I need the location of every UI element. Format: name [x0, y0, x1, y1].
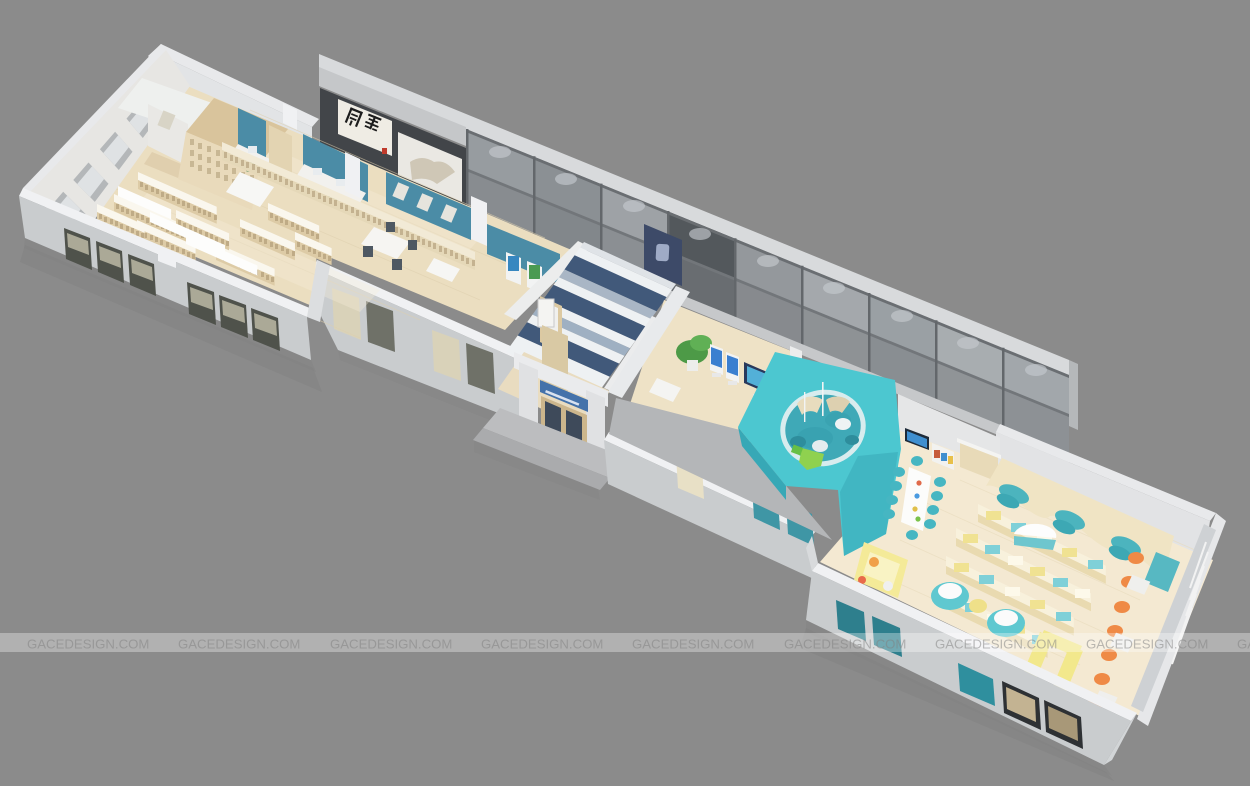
svg-text:GACEDESIGN.COM: GACEDESIGN.COM — [1237, 637, 1250, 652]
svg-text:GACEDESIGN.COM: GACEDESIGN.COM — [935, 637, 1057, 652]
svg-text:GACEDESIGN.COM: GACEDESIGN.COM — [27, 637, 149, 652]
svg-text:GACEDESIGN.COM: GACEDESIGN.COM — [330, 637, 452, 652]
svg-text:GACEDESIGN.COM: GACEDESIGN.COM — [1086, 637, 1208, 652]
svg-text:GACEDESIGN.COM: GACEDESIGN.COM — [632, 637, 754, 652]
svg-text:GACEDESIGN.COM: GACEDESIGN.COM — [784, 637, 906, 652]
svg-text:GACEDESIGN.COM: GACEDESIGN.COM — [178, 637, 300, 652]
svg-text:GACEDESIGN.COM: GACEDESIGN.COM — [481, 637, 603, 652]
